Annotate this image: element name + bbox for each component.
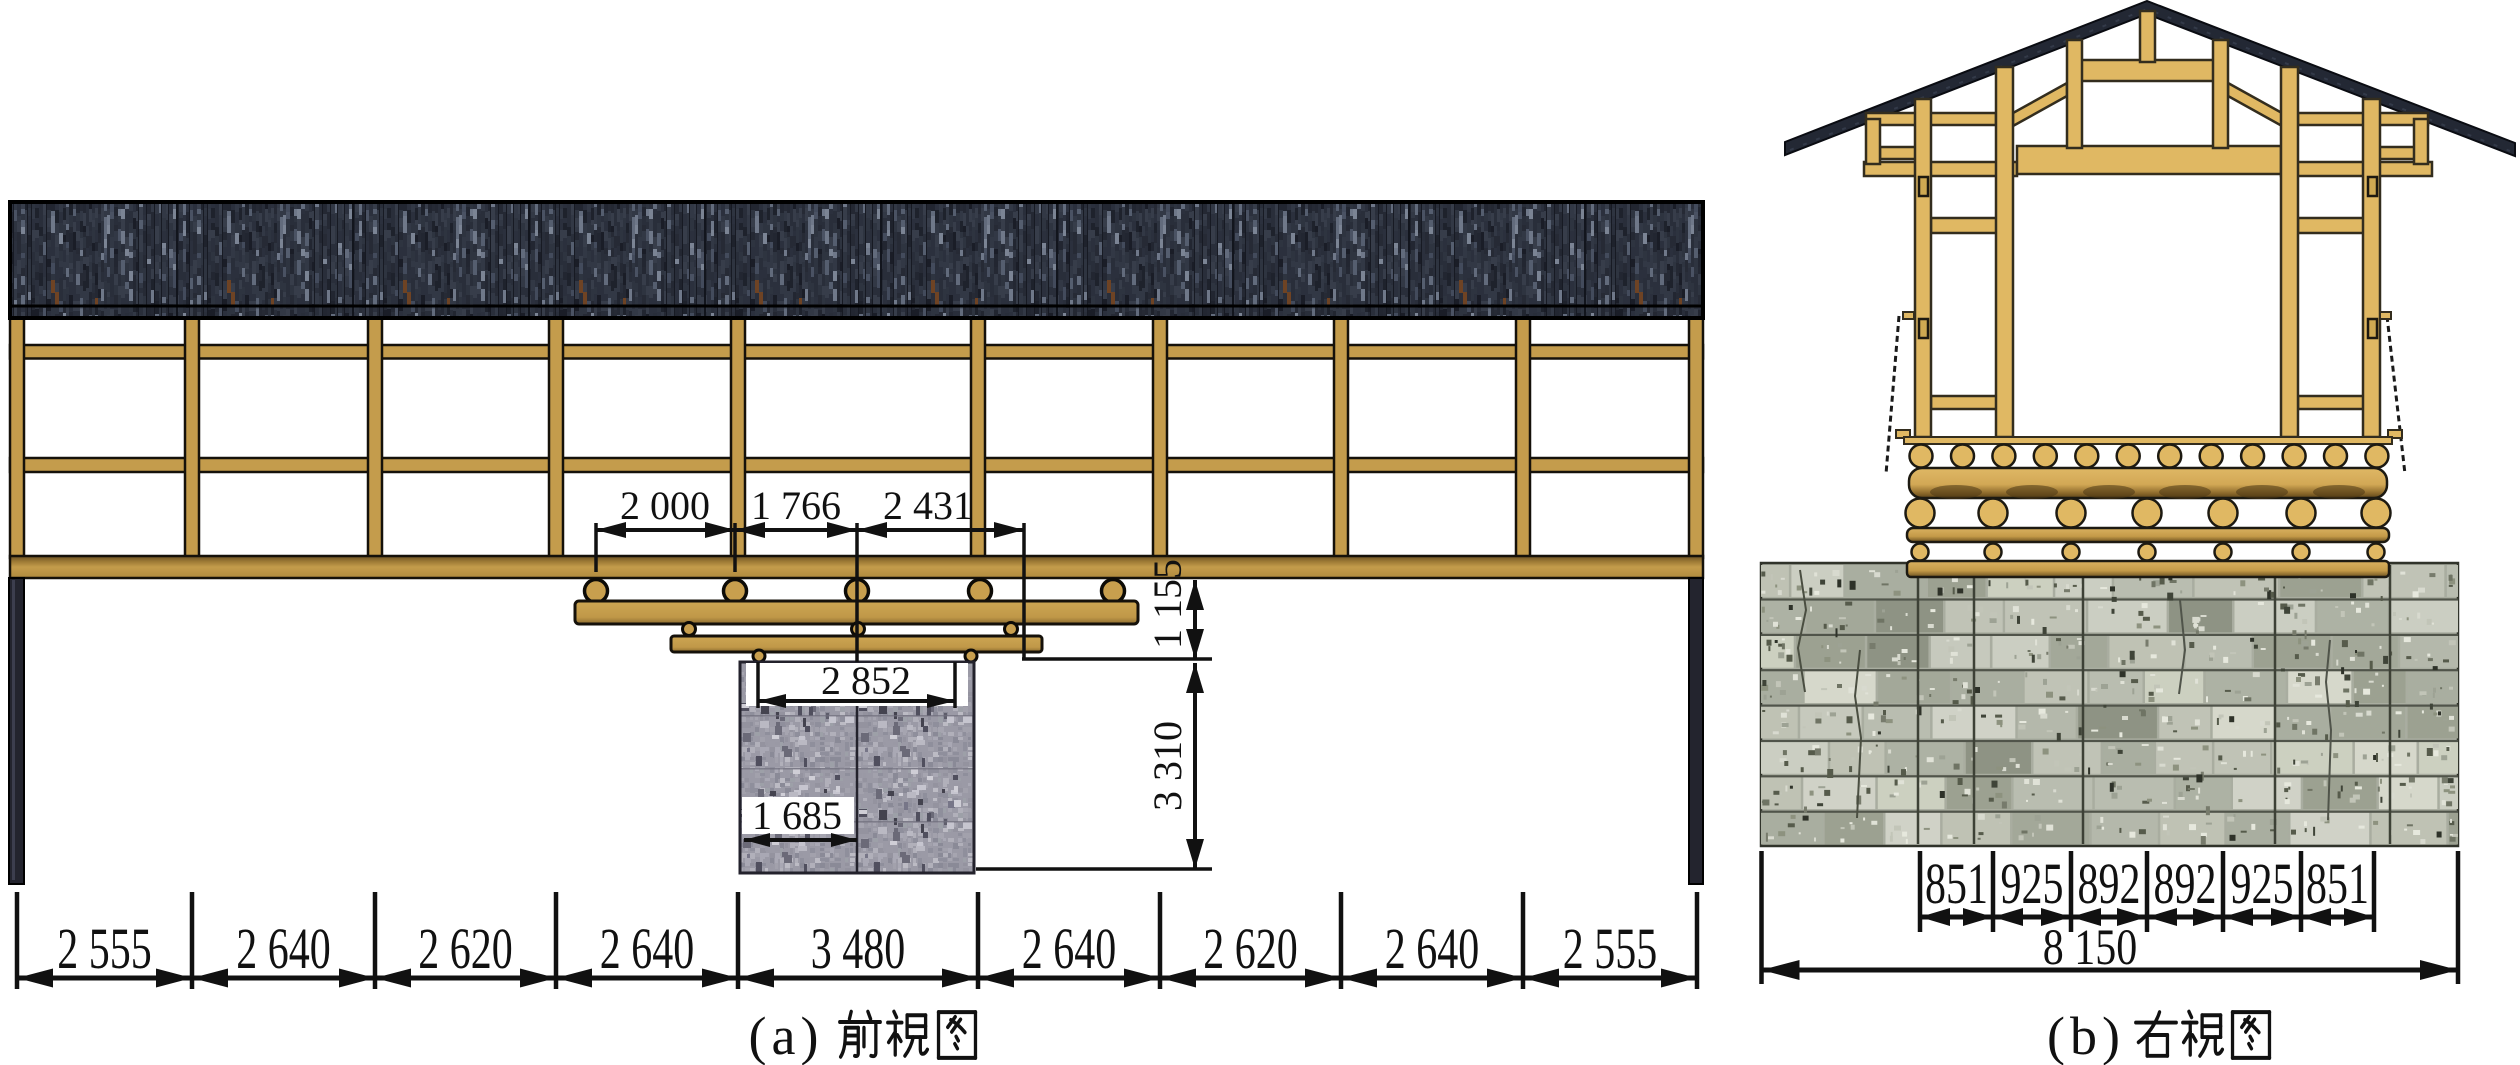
svg-text:925: 925 bbox=[2230, 851, 2293, 915]
svg-text:8 150: 8 150 bbox=[2043, 919, 2137, 976]
svg-text:2 555: 2 555 bbox=[1563, 916, 1657, 980]
svg-text:851: 851 bbox=[1925, 851, 1988, 915]
svg-text:2 555: 2 555 bbox=[57, 916, 151, 980]
svg-text:925: 925 bbox=[2000, 851, 2063, 915]
svg-text:(a): (a) bbox=[749, 1006, 824, 1065]
svg-text:1 766: 1 766 bbox=[751, 483, 841, 528]
svg-text:2 620: 2 620 bbox=[418, 916, 512, 980]
svg-text:2 431: 2 431 bbox=[883, 483, 973, 528]
svg-text:892: 892 bbox=[2153, 851, 2216, 915]
svg-text:2 620: 2 620 bbox=[1203, 916, 1297, 980]
svg-text:1 155: 1 155 bbox=[1145, 559, 1190, 649]
svg-text:2 640: 2 640 bbox=[600, 916, 694, 980]
svg-text:(b): (b) bbox=[2047, 1006, 2125, 1065]
svg-text:2 000: 2 000 bbox=[620, 483, 710, 528]
svg-text:2 640: 2 640 bbox=[1022, 916, 1116, 980]
svg-text:2 640: 2 640 bbox=[236, 916, 330, 980]
svg-text:3 480: 3 480 bbox=[811, 916, 905, 980]
svg-text:1 685: 1 685 bbox=[752, 793, 842, 838]
svg-text:3 310: 3 310 bbox=[1145, 721, 1190, 811]
svg-text:2 640: 2 640 bbox=[1385, 916, 1479, 980]
svg-text:892: 892 bbox=[2077, 851, 2140, 915]
svg-text:851: 851 bbox=[2306, 851, 2369, 915]
svg-text:2 852: 2 852 bbox=[821, 658, 911, 703]
